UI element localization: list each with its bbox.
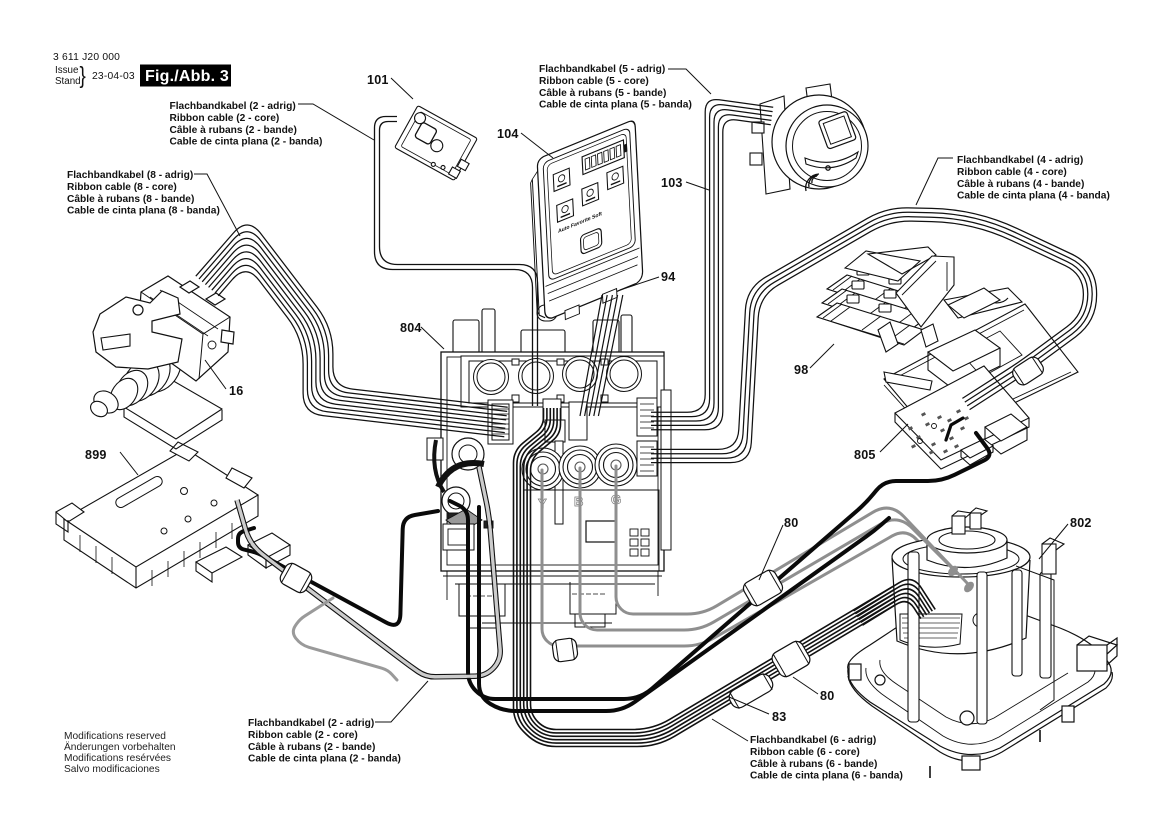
svg-text:80: 80 xyxy=(784,516,798,530)
svg-text:Cable de cinta plana (2 - band: Cable de cinta plana (2 - banda) xyxy=(248,754,401,765)
svg-text:94: 94 xyxy=(661,270,675,284)
svg-text:Flachbandkabel (5 - adrig): Flachbandkabel (5 - adrig) xyxy=(539,64,665,75)
svg-text:3 611 J20 000: 3 611 J20 000 xyxy=(53,52,120,63)
svg-text:103: 103 xyxy=(661,176,683,190)
svg-text:Ribbon cable (2 - core): Ribbon cable (2 - core) xyxy=(248,730,358,741)
svg-text:}: } xyxy=(80,63,86,88)
svg-text:Ribbon cable (4 - core): Ribbon cable (4 - core) xyxy=(957,167,1067,178)
svg-text:Cable de cinta plana (8 - band: Cable de cinta plana (8 - banda) xyxy=(67,206,220,217)
svg-text:Cable de cinta plana (6 - band: Cable de cinta plana (6 - banda) xyxy=(750,771,903,782)
svg-text:Câble à rubans (2 - bande): Câble à rubans (2 - bande) xyxy=(248,742,375,753)
svg-text:Ribbon cable (2 - core): Ribbon cable (2 - core) xyxy=(170,113,280,124)
svg-text:80: 80 xyxy=(820,689,834,703)
svg-text:Cable de cinta plana (2 - band: Cable de cinta plana (2 - banda) xyxy=(170,137,323,148)
svg-text:Flachbandkabel (8 - adrig): Flachbandkabel (8 - adrig) xyxy=(67,170,193,181)
svg-text:Câble à rubans (5 - bande): Câble à rubans (5 - bande) xyxy=(539,88,666,99)
svg-text:Modifications reserved: Modifications reserved xyxy=(64,731,166,742)
svg-text:83: 83 xyxy=(772,710,786,724)
svg-text:805: 805 xyxy=(854,448,876,462)
svg-text:Cable de cinta plana (5 - band: Cable de cinta plana (5 - banda) xyxy=(539,100,692,111)
svg-text:Flachbandkabel (4 - adrig): Flachbandkabel (4 - adrig) xyxy=(957,155,1083,166)
svg-text:Ribbon cable (5 - core): Ribbon cable (5 - core) xyxy=(539,76,649,87)
svg-text:Flachbandkabel (2 - adrig): Flachbandkabel (2 - adrig) xyxy=(170,101,296,112)
svg-text:98: 98 xyxy=(794,363,808,377)
svg-text:Änderungen vorbehalten: Änderungen vorbehalten xyxy=(64,741,176,753)
svg-text:Issue: Issue xyxy=(55,65,79,76)
svg-text:Ribbon cable (8 - core): Ribbon cable (8 - core) xyxy=(67,182,177,193)
svg-text:Salvo modificaciones: Salvo modificaciones xyxy=(64,764,160,775)
svg-text:Modifications resérvées: Modifications resérvées xyxy=(64,753,171,764)
svg-text:16: 16 xyxy=(229,384,243,398)
svg-text:Câble à rubans (4 - bande): Câble à rubans (4 - bande) xyxy=(957,179,1084,190)
svg-text:Cable de cinta plana (4 - band: Cable de cinta plana (4 - banda) xyxy=(957,191,1110,202)
svg-text:Fig./Abb. 3: Fig./Abb. 3 xyxy=(145,68,229,85)
svg-text:101: 101 xyxy=(367,73,389,87)
svg-text:899: 899 xyxy=(85,448,107,462)
svg-text:Ribbon cable (6 - core): Ribbon cable (6 - core) xyxy=(750,747,860,758)
svg-text:Flachbandkabel (2 - adrig): Flachbandkabel (2 - adrig) xyxy=(248,718,374,729)
svg-text:802: 802 xyxy=(1070,516,1092,530)
svg-text:Câble à rubans (2 - bande): Câble à rubans (2 - bande) xyxy=(170,125,297,136)
svg-text:Câble à rubans (6 - bande): Câble à rubans (6 - bande) xyxy=(750,759,877,770)
svg-text:Câble à rubans (8 - bande): Câble à rubans (8 - bande) xyxy=(67,194,194,205)
svg-text:Stand: Stand xyxy=(55,76,81,87)
svg-text:104: 104 xyxy=(497,127,519,141)
svg-text:804: 804 xyxy=(400,321,422,335)
svg-text:Flachbandkabel (6 - adrig): Flachbandkabel (6 - adrig) xyxy=(750,735,876,746)
svg-text:23-04-03: 23-04-03 xyxy=(92,71,135,82)
